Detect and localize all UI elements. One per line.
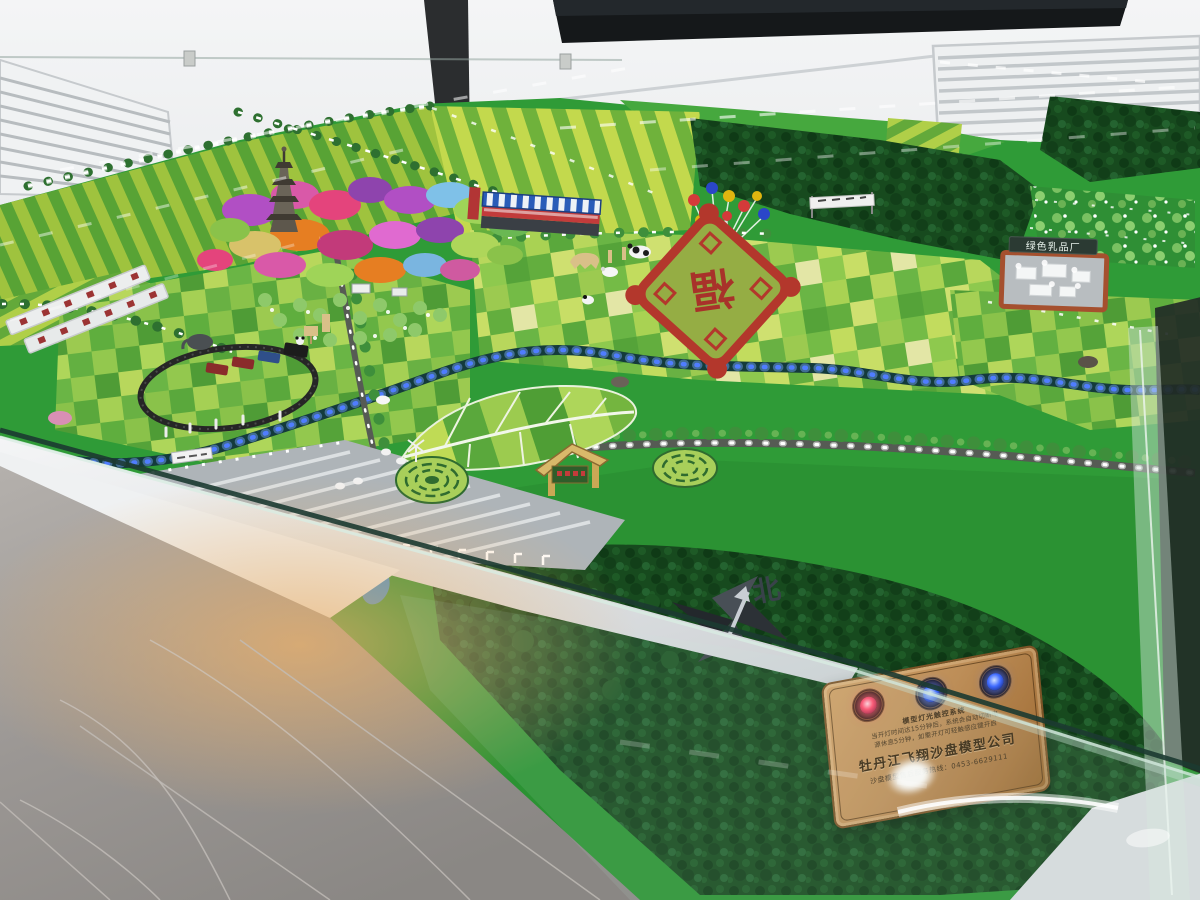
hedge-maze-right <box>653 449 717 487</box>
dairy-factory: 绿色乳品厂 <box>1001 236 1107 310</box>
touch-sensor-button-2[interactable] <box>914 674 950 713</box>
showroom-photo: 福 绿色乳品厂 北 <box>0 0 1200 900</box>
plaque-face: 模型灯光触控系统 当开灯时间达15分钟后，系统会自动切断电 源休息5分钟，如需开… <box>828 652 1043 821</box>
touch-sensor-button-1[interactable] <box>851 686 887 725</box>
compass-north-label: 北 <box>750 572 783 609</box>
touch-sensor-button-3[interactable] <box>977 662 1013 701</box>
fortune-character: 福 <box>687 260 739 317</box>
